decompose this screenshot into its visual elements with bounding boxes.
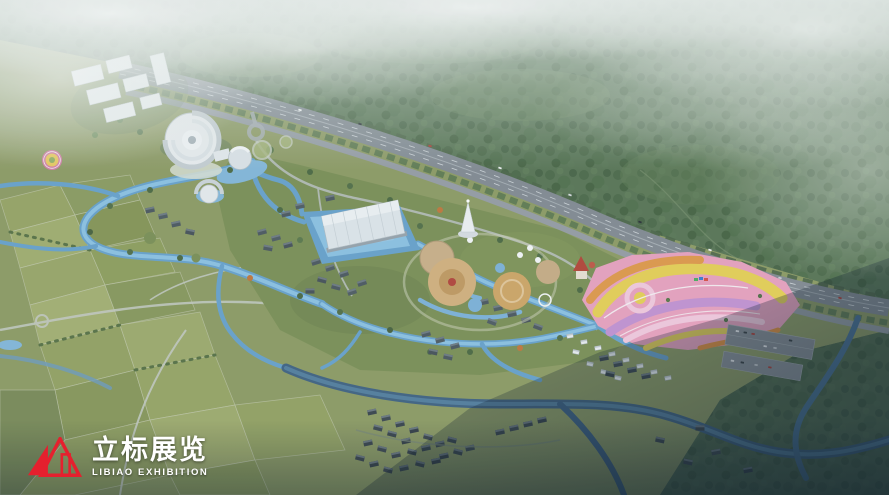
color-grade (0, 0, 889, 495)
logo-english-text: LIBIAO EXHIBITION (92, 468, 208, 478)
libiao-triangle-logo-icon (26, 437, 82, 477)
aerial-rendering: 立标展览 LIBIAO EXHIBITION (0, 0, 889, 495)
logo-text: 立标展览 LIBIAO EXHIBITION (92, 437, 208, 478)
logo-chinese-text: 立标展览 (92, 437, 208, 464)
masterplan-scene (0, 0, 889, 495)
libiao-exhibition-logo: 立标展览 LIBIAO EXHIBITION (26, 437, 208, 478)
